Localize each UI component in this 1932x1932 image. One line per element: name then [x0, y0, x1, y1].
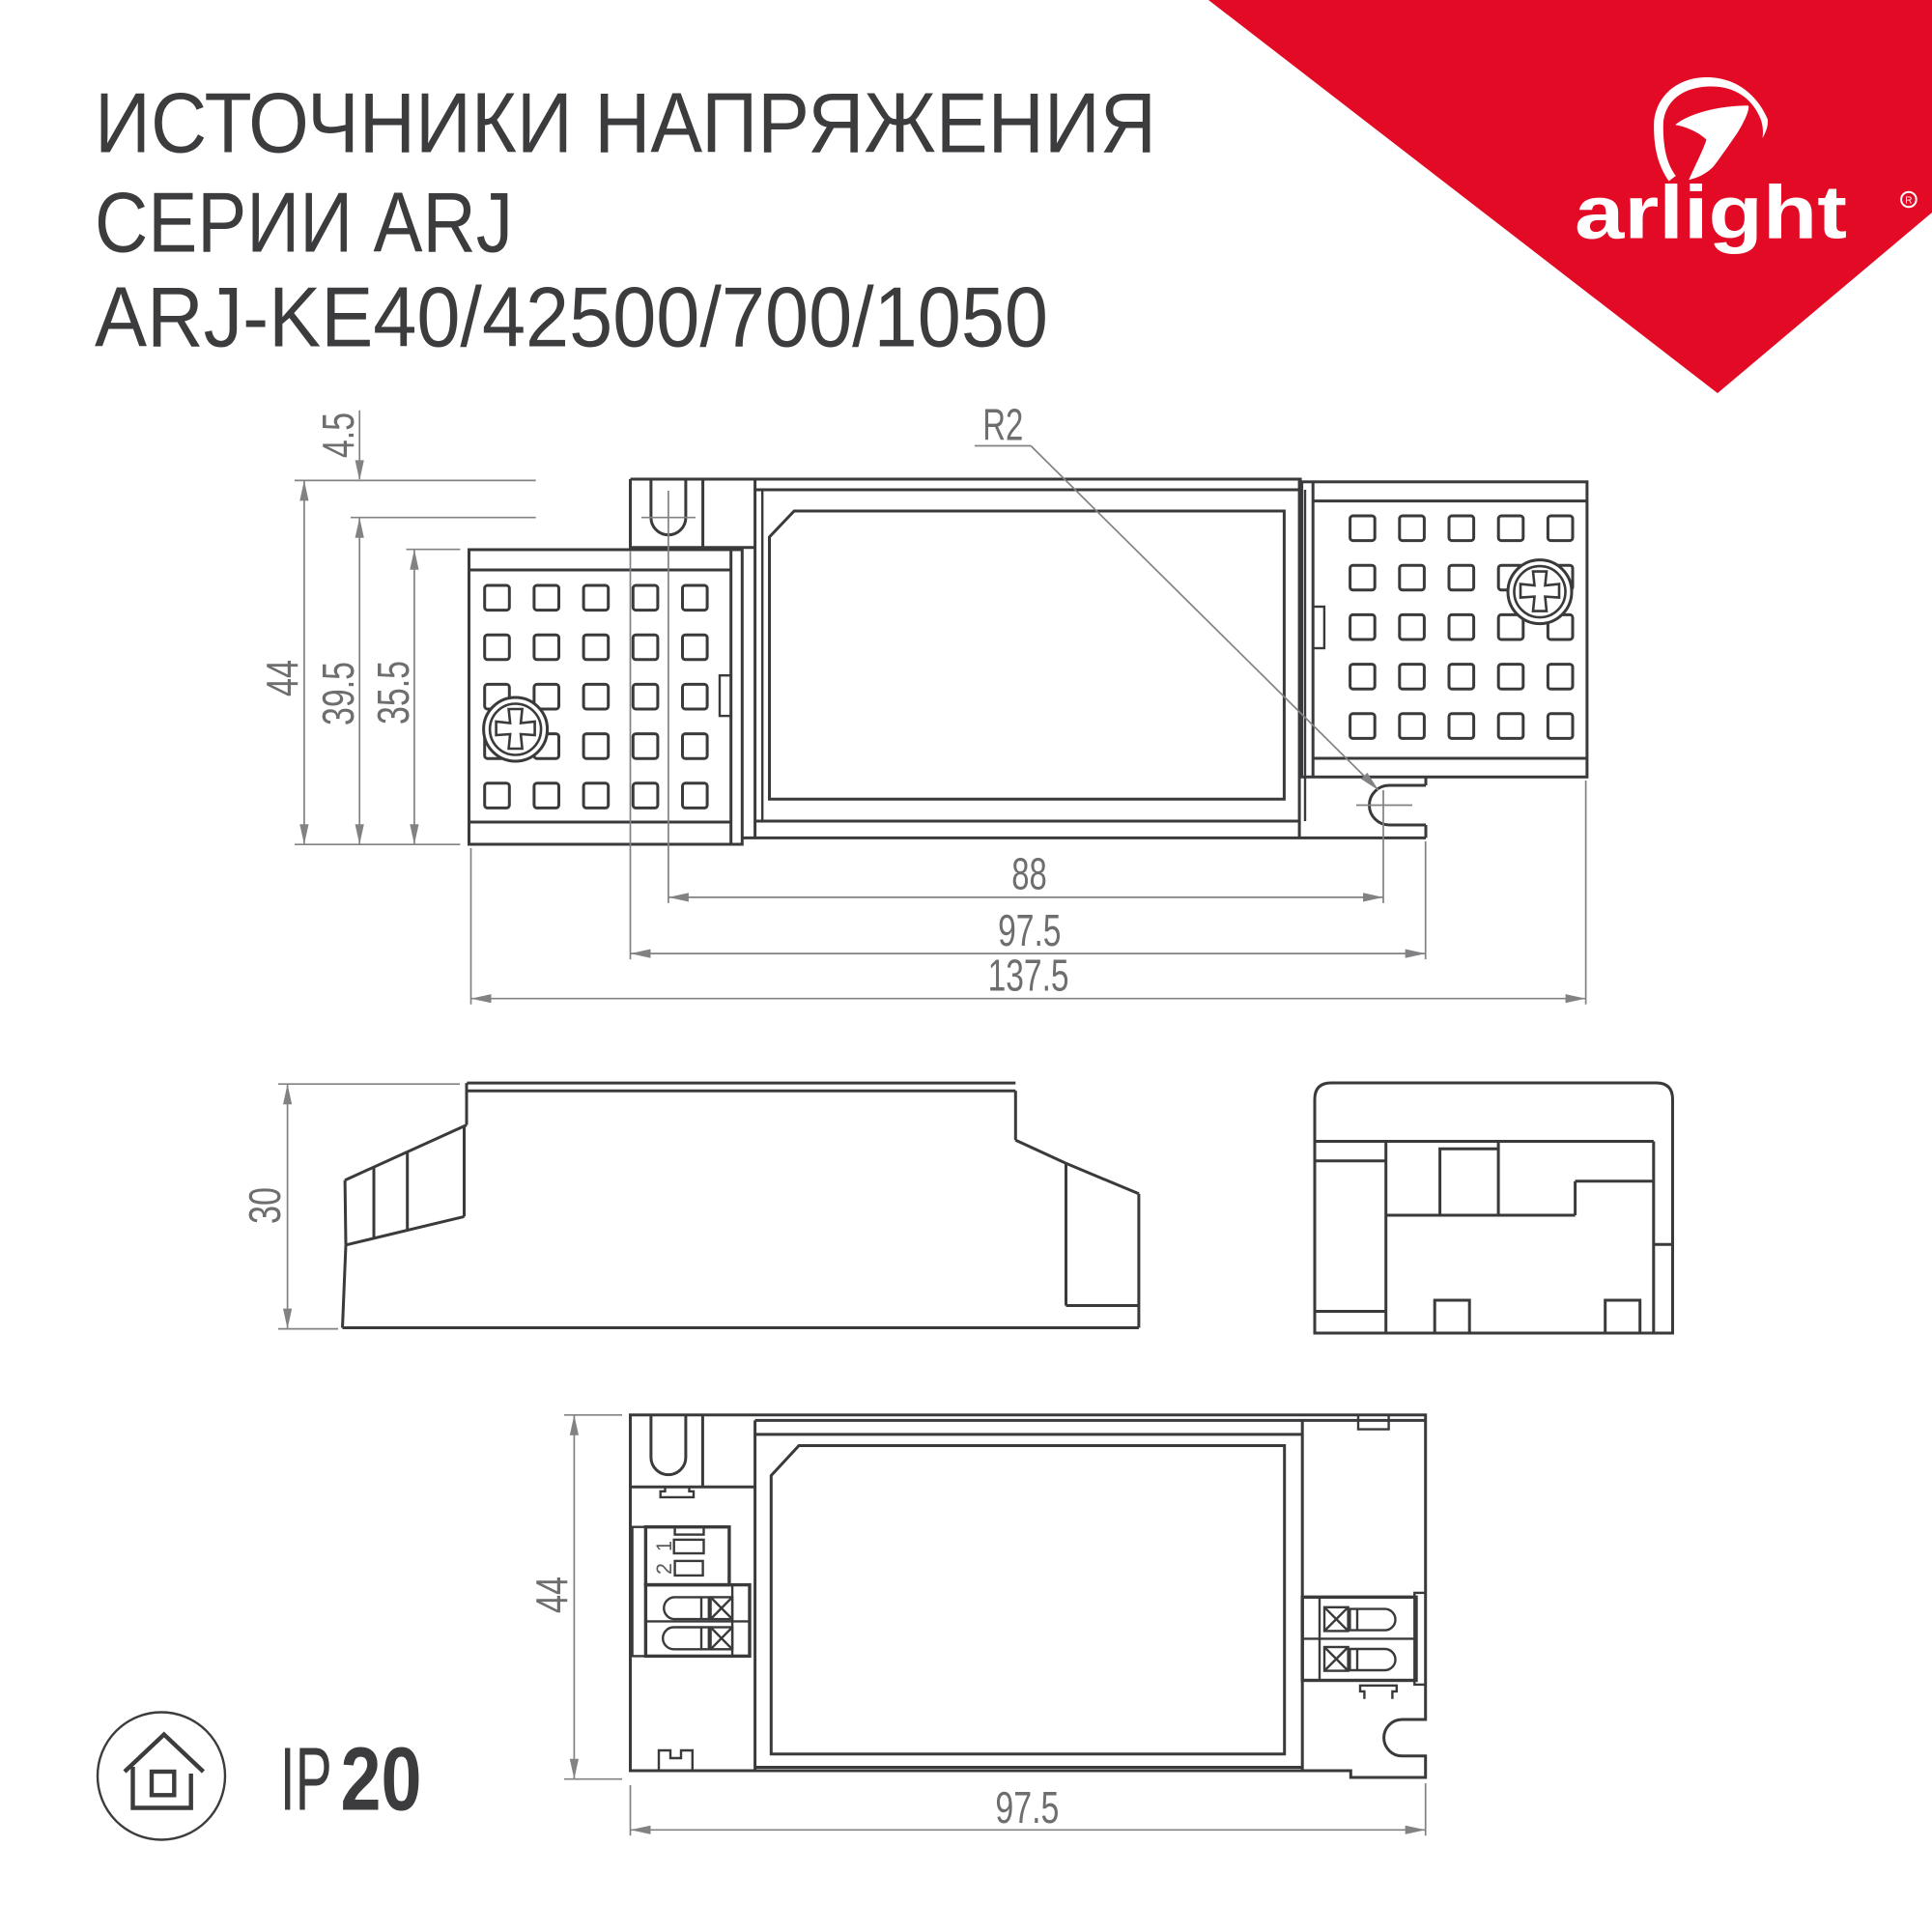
svg-text:20: 20 — [341, 1729, 422, 1830]
svg-text:IP: IP — [280, 1729, 332, 1830]
svg-text:97.5: 97.5 — [995, 1782, 1059, 1833]
svg-text:arlight: arlight — [1575, 170, 1847, 255]
svg-text:39.5: 39.5 — [313, 662, 363, 725]
svg-text:4.5: 4.5 — [313, 412, 363, 458]
svg-text:137.5: 137.5 — [988, 951, 1069, 1001]
svg-text:ИСТОЧНИКИ НАПРЯЖЕНИЯ: ИСТОЧНИКИ НАПРЯЖЕНИЯ — [95, 75, 1156, 171]
svg-text:1: 1 — [652, 1541, 676, 1551]
svg-text:35.5: 35.5 — [368, 661, 418, 724]
svg-text:R2: R2 — [982, 400, 1023, 450]
svg-text:44: 44 — [526, 1577, 577, 1613]
svg-text:30: 30 — [240, 1187, 290, 1224]
svg-text:2: 2 — [652, 1563, 676, 1575]
svg-text:88: 88 — [1011, 849, 1047, 899]
svg-text:97.5: 97.5 — [998, 905, 1061, 955]
svg-text:СЕРИИ ARJ: СЕРИИ ARJ — [95, 175, 513, 270]
svg-text:ARJ-KE40/42500/700/1050: ARJ-KE40/42500/700/1050 — [95, 270, 1048, 365]
svg-text:R: R — [1905, 196, 1912, 207]
svg-text:44: 44 — [257, 660, 307, 696]
